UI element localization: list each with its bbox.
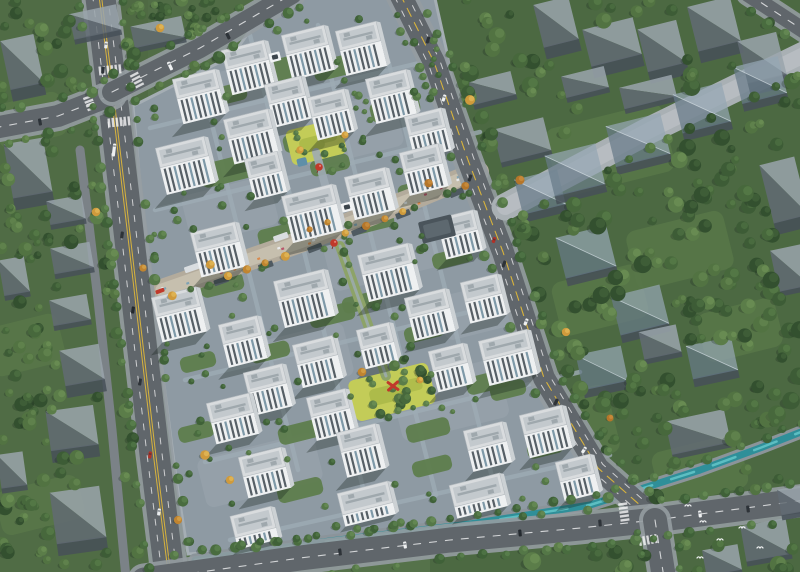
tree-highlight <box>106 288 110 292</box>
tree-highlight <box>71 127 75 131</box>
tree-highlight <box>336 59 340 63</box>
tree-highlight <box>394 156 398 160</box>
tree-highlight <box>595 549 602 556</box>
tree-highlight <box>99 163 105 169</box>
tree-highlight <box>120 340 125 345</box>
tree-highlight <box>323 246 327 250</box>
tree-highlight <box>225 13 230 18</box>
tree-highlight <box>637 530 641 534</box>
tree-highlight <box>532 502 537 507</box>
tree-highlight <box>201 546 206 551</box>
tree-highlight <box>43 348 51 356</box>
tree-highlight <box>187 32 191 36</box>
tree-highlight <box>131 442 137 448</box>
tree-highlight <box>282 217 287 222</box>
tree-highlight <box>450 153 455 158</box>
tree-highlight <box>642 438 649 445</box>
tree-highlight <box>23 513 28 518</box>
tree-highlight <box>350 532 355 537</box>
tree-highlight <box>765 207 771 213</box>
tree-highlight <box>296 135 300 139</box>
tree-highlight <box>743 329 751 337</box>
tree-highlight <box>607 447 612 452</box>
tree-highlight <box>7 174 14 181</box>
tree-highlight <box>769 273 778 282</box>
tree-highlight <box>436 30 441 35</box>
tree-highlight <box>171 292 176 297</box>
tree-highlight <box>51 146 58 153</box>
tree-highlight <box>743 186 752 195</box>
tree-highlight <box>372 401 377 406</box>
tree-highlight <box>678 543 683 548</box>
tree-highlight <box>16 222 22 228</box>
tree-highlight <box>578 382 587 391</box>
tree-highlight <box>548 61 554 67</box>
tree-highlight <box>342 278 347 283</box>
tree-highlight <box>419 377 423 381</box>
tree-highlight <box>495 28 504 37</box>
tree-highlight <box>205 371 209 375</box>
tree-highlight <box>781 353 787 359</box>
tree-highlight <box>682 406 689 413</box>
tree-highlight <box>208 282 213 287</box>
tree-highlight <box>56 39 62 45</box>
tree-highlight <box>130 420 136 426</box>
tree-highlight <box>41 547 46 552</box>
tree-highlight <box>535 464 539 468</box>
tree-highlight <box>229 477 234 482</box>
tree-highlight <box>197 431 201 435</box>
tree-highlight <box>0 82 7 89</box>
tree-highlight <box>199 417 204 422</box>
tree-highlight <box>441 405 445 409</box>
tree-highlight <box>656 258 662 264</box>
tree-highlight <box>214 545 220 551</box>
tree-highlight <box>653 474 658 479</box>
tree-highlight <box>124 42 128 46</box>
tree-highlight <box>327 220 331 224</box>
tree-highlight <box>154 232 157 235</box>
tree-highlight <box>274 325 278 329</box>
tree-highlight <box>1 93 7 99</box>
tree-highlight <box>414 205 418 209</box>
tree-highlight <box>610 4 615 9</box>
car-windshield <box>105 43 108 45</box>
tree-highlight <box>335 333 338 336</box>
tree-highlight <box>177 474 183 480</box>
tree-highlight <box>789 479 795 485</box>
tree-highlight <box>509 323 515 329</box>
architectural-aerial-render <box>0 0 800 572</box>
tree-highlight <box>725 278 732 285</box>
tree-highlight <box>163 356 168 361</box>
tree-highlight <box>347 221 352 226</box>
tree-highlight <box>167 342 170 345</box>
tree-highlight <box>204 451 209 456</box>
tree-highlight <box>619 394 628 403</box>
tree-highlight <box>15 213 21 219</box>
tree-highlight <box>684 494 690 500</box>
tree-highlight <box>140 11 145 16</box>
tree-highlight <box>131 433 138 440</box>
tree-highlight <box>95 560 102 567</box>
tree-highlight <box>409 343 414 348</box>
tree-highlight <box>91 182 95 186</box>
tree-highlight <box>706 455 712 461</box>
car-windshield <box>102 68 105 70</box>
tree-highlight <box>511 218 516 223</box>
tree-highlight <box>723 398 731 406</box>
tree-highlight <box>469 96 474 101</box>
balloon-highlight <box>334 241 336 243</box>
tree-highlight <box>633 249 641 257</box>
tree-highlight <box>724 489 729 494</box>
tree-highlight <box>369 376 373 380</box>
tree-highlight <box>731 332 736 337</box>
tree-highlight <box>245 224 248 227</box>
tree-highlight <box>598 431 603 436</box>
tree-highlight <box>754 485 760 491</box>
tree-highlight <box>685 140 694 149</box>
tree-highlight <box>707 297 715 305</box>
tree-highlight <box>206 344 209 347</box>
tree-highlight <box>94 125 98 129</box>
tree-highlight <box>519 176 524 181</box>
tree-highlight <box>501 198 507 204</box>
tree-highlight <box>44 513 49 518</box>
tree-highlight <box>783 97 789 103</box>
tree-highlight <box>667 531 672 536</box>
tree-highlight <box>632 374 640 382</box>
tree-highlight <box>221 135 224 138</box>
tree-highlight <box>649 143 655 149</box>
tree-highlight <box>139 499 144 504</box>
tree-highlight <box>433 57 436 60</box>
tree-highlight <box>404 394 410 400</box>
tree-highlight <box>675 300 680 305</box>
tree-highlight <box>202 25 206 29</box>
tree-highlight <box>638 188 643 193</box>
tree-highlight <box>464 183 468 187</box>
tree-highlight <box>134 62 139 67</box>
tree-highlight <box>453 188 456 191</box>
tree-highlight <box>633 478 637 482</box>
tree-highlight <box>344 230 348 234</box>
tree-highlight <box>149 235 154 240</box>
tree-highlight <box>750 7 756 13</box>
tree-highlight <box>730 146 734 150</box>
tree-highlight <box>740 443 745 448</box>
tree-highlight <box>630 382 636 388</box>
tree-highlight <box>220 184 224 188</box>
tree-highlight <box>130 83 135 88</box>
tree-highlight <box>143 541 148 546</box>
tree-highlight <box>730 269 739 278</box>
tree-highlight <box>30 500 37 507</box>
tree-highlight <box>24 243 32 251</box>
tree-highlight <box>5 328 9 332</box>
tree-highlight <box>534 292 540 298</box>
tree-highlight <box>42 474 50 482</box>
tree-highlight <box>277 538 282 543</box>
tree-highlight <box>246 266 251 271</box>
tree-highlight <box>355 565 359 569</box>
tree-highlight <box>783 345 790 352</box>
car <box>598 519 602 526</box>
tree-highlight <box>81 22 86 27</box>
tree-highlight <box>636 456 641 461</box>
tree-highlight <box>356 302 359 305</box>
tree-highlight <box>765 483 771 489</box>
tree-highlight <box>715 299 723 307</box>
tree-highlight <box>531 55 539 63</box>
tree-highlight <box>122 20 126 24</box>
tree-highlight <box>344 148 347 151</box>
tree-highlight <box>379 410 384 415</box>
tree-highlight <box>395 563 399 567</box>
tree-highlight <box>40 36 44 40</box>
tree-highlight <box>726 163 734 171</box>
tree-highlight <box>142 265 146 269</box>
tree-highlight <box>250 193 255 198</box>
tree-highlight <box>18 342 25 349</box>
tree-highlight <box>564 211 571 218</box>
tree-highlight <box>565 328 570 333</box>
tree-highlight <box>481 142 486 147</box>
tree-highlight <box>522 211 528 217</box>
tree-highlight <box>777 475 782 480</box>
balloon-sculpture <box>330 239 338 247</box>
tree-highlight <box>730 200 735 205</box>
tree-highlight <box>545 546 550 551</box>
tree-highlight <box>278 419 282 423</box>
tree-highlight <box>584 412 589 417</box>
tree-highlight <box>678 565 682 569</box>
tree-highlight <box>635 6 642 13</box>
tree-highlight <box>48 238 53 243</box>
tree-highlight <box>331 459 335 463</box>
tree-highlight <box>675 390 680 395</box>
tree-highlight <box>616 287 624 295</box>
tree-highlight <box>700 335 705 340</box>
tree-highlight <box>576 347 584 355</box>
tree-highlight <box>116 303 121 308</box>
tree-highlight <box>695 315 701 321</box>
balloon-sculpture <box>315 163 323 171</box>
tree-highlight <box>505 551 510 556</box>
tree-highlight <box>402 377 407 382</box>
tree-highlight <box>47 128 53 134</box>
tree-highlight <box>425 401 428 404</box>
tree-highlight <box>460 553 464 557</box>
tree-highlight <box>307 535 312 540</box>
tree-highlight <box>557 543 562 548</box>
tree-highlight <box>96 393 102 399</box>
tree-highlight <box>438 554 444 560</box>
tree-highlight <box>522 546 527 551</box>
tree-highlight <box>58 390 65 397</box>
tree-highlight <box>552 497 558 503</box>
tree-highlight <box>222 384 225 387</box>
tree-highlight <box>662 385 669 392</box>
tree-highlight <box>14 370 21 377</box>
tree-highlight <box>541 312 546 317</box>
tree-highlight <box>73 182 79 188</box>
tree-highlight <box>595 492 599 496</box>
tree-highlight <box>624 560 631 567</box>
tree-highlight <box>775 83 780 88</box>
tree-highlight <box>213 119 217 123</box>
tree-highlight <box>93 117 97 121</box>
tree-highlight <box>9 205 13 209</box>
tree-highlight <box>36 240 40 244</box>
tree-highlight <box>235 283 238 286</box>
tree-highlight <box>399 28 404 33</box>
tree-highlight <box>44 42 52 50</box>
tree-highlight <box>46 556 51 561</box>
tree-highlight <box>8 140 13 145</box>
tree-highlight <box>677 153 686 162</box>
tree-highlight <box>393 521 398 526</box>
tree-highlight <box>653 536 657 540</box>
tree-highlight <box>560 91 565 96</box>
tree-highlight <box>745 465 751 471</box>
tree-highlight <box>404 369 408 373</box>
tree-highlight <box>63 26 70 33</box>
tree-highlight <box>414 260 417 263</box>
tree-highlight <box>766 229 773 236</box>
tree-highlight <box>220 15 225 20</box>
tree-highlight <box>355 106 358 109</box>
tree-highlight <box>418 63 423 68</box>
tree-highlight <box>419 366 425 372</box>
tree-highlight <box>306 19 309 22</box>
tree-highlight <box>259 538 263 542</box>
tree-highlight <box>148 564 154 570</box>
tree-highlight <box>295 131 298 134</box>
tree-highlight <box>309 227 312 230</box>
tree-highlight <box>356 525 360 529</box>
tree-highlight <box>8 389 13 394</box>
tree-highlight <box>428 492 431 495</box>
tree-highlight <box>762 265 769 272</box>
tree-highlight <box>697 179 702 184</box>
tree-highlight <box>59 65 67 73</box>
tree-highlight <box>602 14 611 23</box>
tree-highlight <box>528 78 538 88</box>
tree-highlight <box>789 393 799 403</box>
tree-highlight <box>188 471 192 475</box>
tree-highlight <box>612 173 621 182</box>
tree-highlight <box>700 188 709 197</box>
tree-highlight <box>779 564 786 571</box>
balloon-highlight <box>319 165 321 167</box>
tree-highlight <box>475 397 478 400</box>
aerial-scene-canvas <box>0 0 800 572</box>
tree-highlight <box>756 381 763 388</box>
tree-highlight <box>187 11 192 16</box>
tree-highlight <box>431 387 436 392</box>
tree-highlight <box>28 19 34 25</box>
tree-highlight <box>480 111 488 119</box>
tree-highlight <box>92 104 96 108</box>
tree-highlight <box>237 5 241 9</box>
tree-highlight <box>573 394 579 400</box>
tree-highlight <box>670 5 676 11</box>
tree-highlight <box>394 481 398 485</box>
tree-highlight <box>576 214 584 222</box>
tree-highlight <box>608 308 616 316</box>
tree-highlight <box>540 511 545 516</box>
tree-highlight <box>563 127 570 134</box>
tree-highlight <box>78 3 83 8</box>
tree-highlight <box>669 468 673 472</box>
tree-highlight <box>175 463 179 467</box>
tree-highlight <box>521 225 526 230</box>
tree-highlight <box>553 351 558 356</box>
tree-highlight <box>46 527 54 535</box>
tree-highlight <box>431 62 434 65</box>
tree-highlight <box>348 262 352 266</box>
tree-highlight <box>315 532 319 536</box>
tree-highlight <box>684 540 690 546</box>
tree-highlight <box>602 211 611 220</box>
tree-highlight <box>641 551 645 555</box>
tree-highlight <box>358 16 362 20</box>
tree-highlight <box>242 294 247 299</box>
tree-highlight <box>375 303 380 308</box>
tree-highlight <box>19 518 24 523</box>
tree-highlight <box>39 394 47 402</box>
tree-highlight <box>766 19 772 25</box>
tree-highlight <box>68 16 75 23</box>
tree-highlight <box>652 217 657 222</box>
tree-highlight <box>599 288 609 298</box>
tree-highlight <box>184 71 188 75</box>
tree-highlight <box>191 6 195 10</box>
tree-highlight <box>648 487 653 492</box>
tree-highlight <box>28 418 36 426</box>
tree-highlight <box>733 393 742 402</box>
tree-highlight <box>689 460 694 465</box>
tree-highlight <box>393 361 399 367</box>
tree-highlight <box>636 427 641 432</box>
tree-highlight <box>530 554 540 564</box>
tree-highlight <box>656 413 662 419</box>
tree-highlight <box>374 525 378 529</box>
tree-highlight <box>59 468 65 474</box>
tree-highlight <box>753 92 759 98</box>
tree-highlight <box>775 407 785 417</box>
tree-highlight <box>324 151 328 155</box>
tree-highlight <box>784 30 790 36</box>
tree-highlight <box>734 156 739 161</box>
tree-highlight <box>542 252 548 258</box>
tree-highlight <box>105 548 111 554</box>
tree-highlight <box>774 419 779 424</box>
tree-highlight <box>365 99 368 102</box>
road-bottom-branch <box>655 520 664 572</box>
tree-highlight <box>335 523 340 528</box>
tree-highlight <box>393 222 397 226</box>
tree-highlight <box>422 73 426 77</box>
tree-highlight <box>486 18 492 24</box>
tree-highlight <box>344 78 348 82</box>
tree-highlight <box>331 167 336 172</box>
tree-highlight <box>429 95 433 99</box>
tree-highlight <box>394 313 398 317</box>
tree-highlight <box>583 400 589 406</box>
